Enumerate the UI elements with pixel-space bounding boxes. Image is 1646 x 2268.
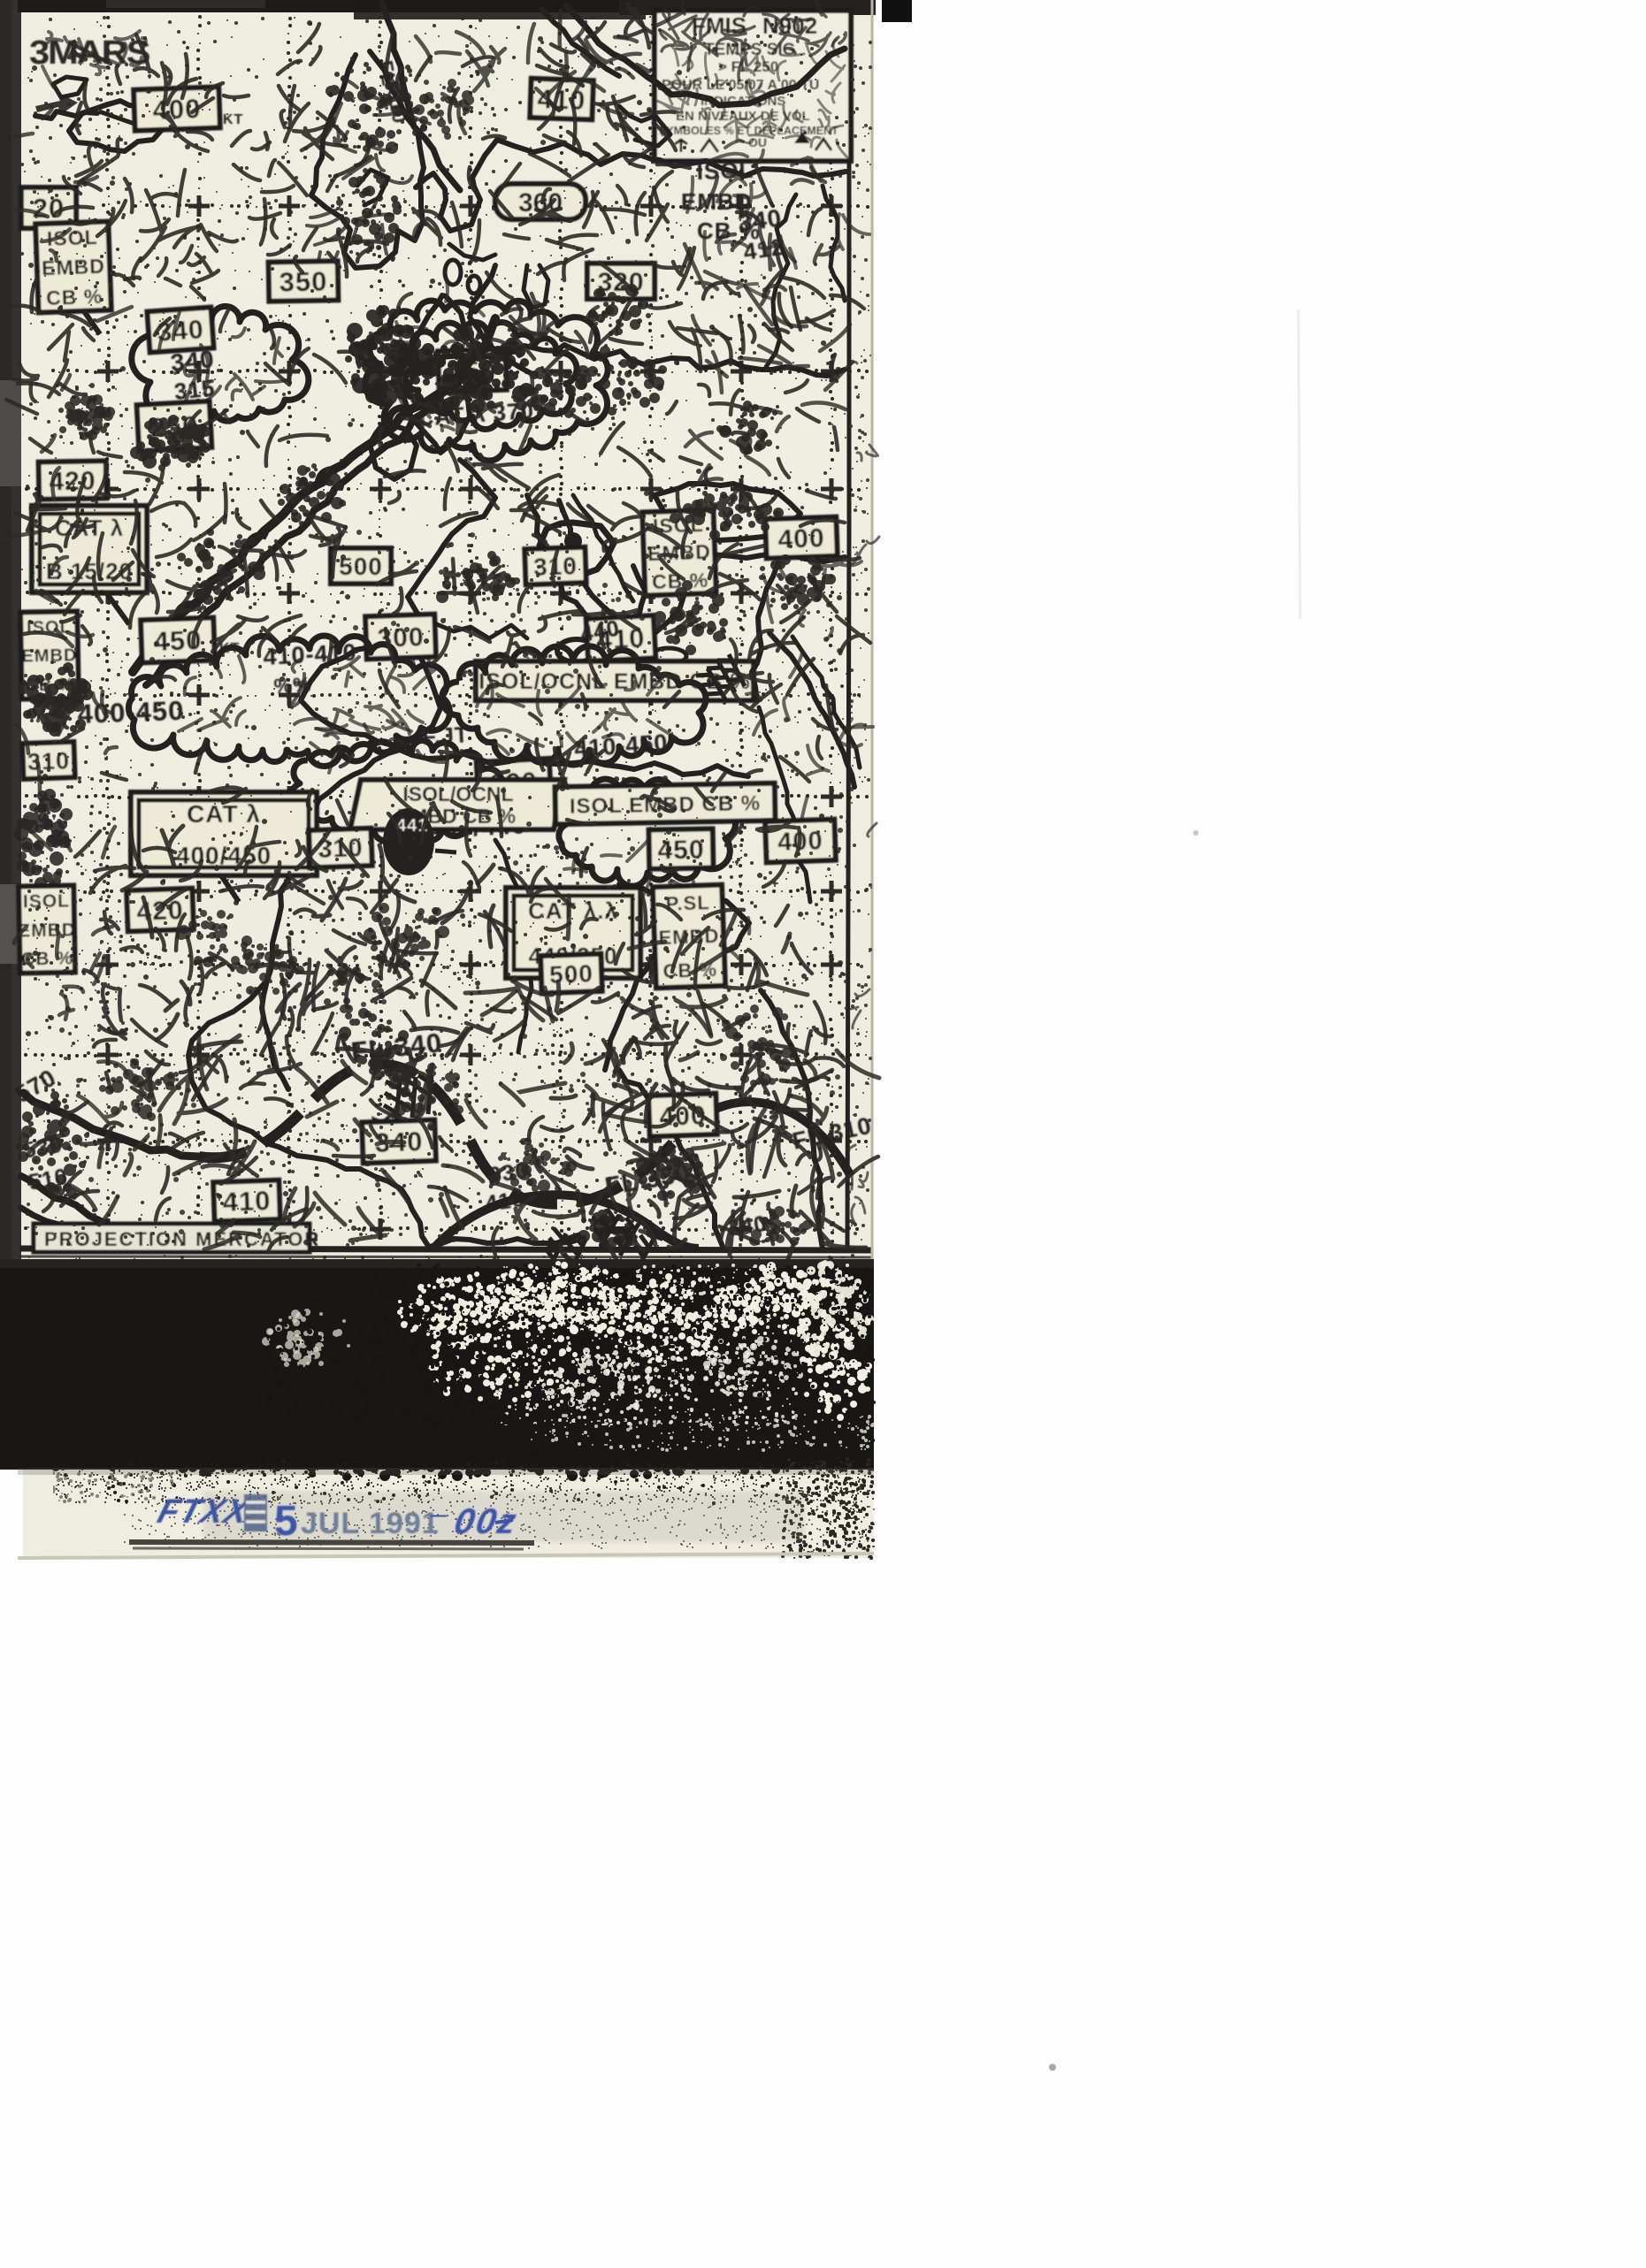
svg-text:EN NIVEAUX DE VOL: EN NIVEAUX DE VOL [676, 109, 810, 124]
svg-text:FTXX: FTXX [153, 1493, 254, 1531]
svg-text:20: 20 [33, 193, 65, 224]
svg-text:CAT λ.λ: CAT λ.λ [528, 897, 618, 924]
svg-text:JUL 1991: JUL 1991 [301, 1507, 440, 1540]
svg-text:500: 500 [549, 959, 594, 989]
svg-text:ISOL: ISOL [696, 157, 754, 185]
svg-text:400: 400 [777, 523, 825, 554]
svg-text:450: 450 [657, 836, 705, 866]
svg-text:KT: KT [223, 112, 243, 127]
svg-text:5: 5 [274, 1498, 298, 1545]
svg-text:EMBD: EMBD [18, 920, 76, 941]
